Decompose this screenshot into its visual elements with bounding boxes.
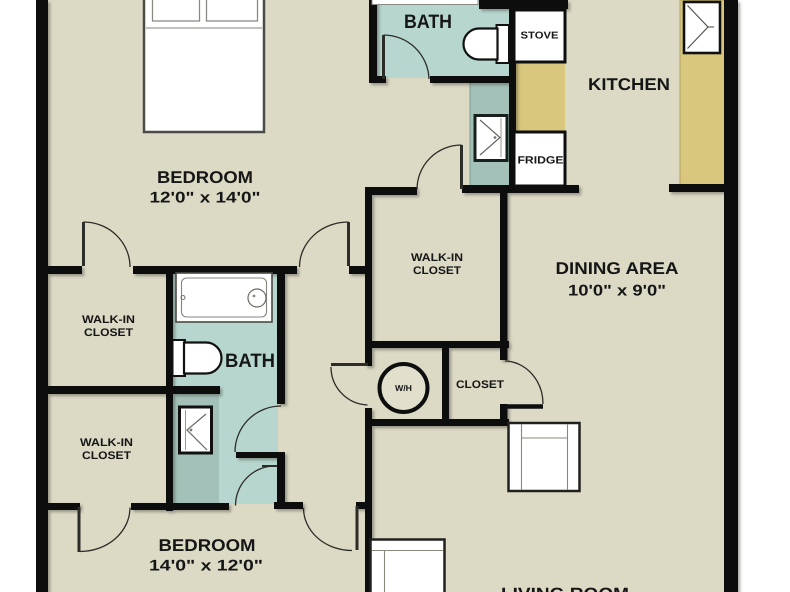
svg-text:WALK-IN: WALK-IN (411, 252, 463, 264)
svg-text:BEDROOM: BEDROOM (159, 536, 256, 555)
svg-text:BATH: BATH (225, 350, 275, 372)
svg-text:10'0" x 9'0": 10'0" x 9'0" (568, 283, 666, 300)
svg-text:LIVING ROOM: LIVING ROOM (501, 585, 629, 592)
svg-text:W/H: W/H (395, 383, 412, 393)
svg-text:STOVE: STOVE (521, 31, 559, 42)
svg-text:CLOSET: CLOSET (84, 327, 133, 339)
svg-text:14'0" x 12'0": 14'0" x 12'0" (149, 558, 263, 575)
svg-text:DINING AREA: DINING AREA (556, 259, 679, 278)
svg-text:FRIDGE: FRIDGE (518, 155, 564, 167)
svg-text:BATH: BATH (404, 11, 452, 33)
svg-text:CLOSET: CLOSET (82, 450, 131, 462)
svg-text:12'0" x 14'0": 12'0" x 14'0" (150, 190, 261, 207)
svg-text:WALK-IN: WALK-IN (80, 437, 133, 449)
svg-text:CLOSET: CLOSET (413, 265, 461, 277)
svg-text:CLOSET: CLOSET (456, 379, 504, 391)
svg-text:KITCHEN: KITCHEN (588, 75, 670, 94)
svg-text:BEDROOM: BEDROOM (157, 168, 253, 187)
svg-text:WALK-IN: WALK-IN (82, 314, 135, 326)
